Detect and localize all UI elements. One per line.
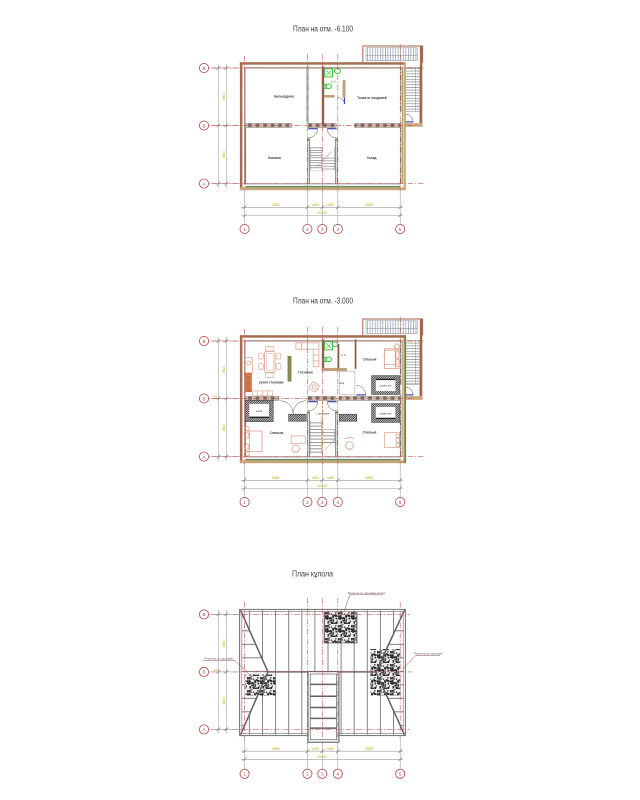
svg-text:10040: 10040 <box>317 484 327 488</box>
svg-text:3: 3 <box>321 500 324 505</box>
svg-text:1490: 1490 <box>311 476 319 480</box>
svg-text:Гостиная: Гостиная <box>298 371 313 375</box>
svg-text:Склад: Склад <box>367 156 377 160</box>
svg-text:5080: 5080 <box>272 747 280 751</box>
svg-text:3: 3 <box>321 772 324 777</box>
svg-text:150: 150 <box>214 668 219 672</box>
svg-text:1: 1 <box>243 772 246 777</box>
svg-text:1485: 1485 <box>326 476 334 480</box>
svg-text:шкф: шкф <box>339 382 344 385</box>
svg-text:План кұпола: План кұпола <box>292 570 334 579</box>
svg-text:2: 2 <box>306 772 309 777</box>
svg-text:5800: 5800 <box>222 639 226 647</box>
svg-text:4: 4 <box>337 227 340 232</box>
svg-text:1490: 1490 <box>311 747 319 751</box>
svg-text:5800: 5800 <box>222 151 226 159</box>
svg-text:5800: 5800 <box>222 697 226 705</box>
svg-text:1: 1 <box>243 227 246 232</box>
svg-text:Топка от кладовой: Топка от кладовой <box>357 96 386 100</box>
svg-text:5080: 5080 <box>272 203 280 207</box>
svg-text:Омывка: Омывка <box>268 156 281 160</box>
svg-text:1: 1 <box>243 500 246 505</box>
svg-text:Спальня: Спальня <box>363 357 377 361</box>
svg-text:4: 4 <box>337 500 340 505</box>
svg-text:Решетка су ташлама: Решетка су ташлама <box>414 652 442 656</box>
svg-text:Бильярдная: Бильярдная <box>274 94 294 98</box>
svg-text:План на отм. -6.100: План на отм. -6.100 <box>293 24 354 33</box>
svg-text:В: В <box>202 339 205 344</box>
svg-text:10040: 10040 <box>317 755 327 759</box>
svg-text:5800: 5800 <box>222 93 226 101</box>
svg-text:Спальня: Спальня <box>270 431 284 435</box>
svg-text:кухня столовая: кухня столовая <box>259 381 284 385</box>
svg-text:Спальня: Спальня <box>363 431 377 435</box>
svg-text:5: 5 <box>399 772 402 777</box>
svg-text:шкаф-купе: шкаф-купе <box>380 412 393 415</box>
svg-text:2: 2 <box>306 227 309 232</box>
svg-text:150: 150 <box>213 394 218 398</box>
svg-text:Решетка су ташлама тесиги: Решетка су ташлама тесиги <box>348 591 386 595</box>
svg-text:10040: 10040 <box>317 211 327 215</box>
svg-text:Решетка су ташлама: Решетка су ташлама <box>205 657 233 661</box>
svg-text:5: 5 <box>399 227 402 232</box>
svg-text:1485: 1485 <box>326 747 334 751</box>
svg-text:1485: 1485 <box>326 203 334 207</box>
svg-text:5800: 5800 <box>222 424 226 432</box>
svg-text:прихожая: прихожая <box>318 412 330 415</box>
svg-text:4: 4 <box>337 772 340 777</box>
svg-text:5080: 5080 <box>272 476 280 480</box>
svg-text:План на отм. -3.000: План на отм. -3.000 <box>293 297 354 306</box>
svg-text:2: 2 <box>306 500 309 505</box>
svg-text:С.У: С.У <box>331 79 336 83</box>
svg-text:5950: 5950 <box>366 203 374 207</box>
svg-text:5950: 5950 <box>366 747 374 751</box>
svg-text:5800: 5800 <box>222 366 226 374</box>
svg-text:Б: Б <box>202 396 205 401</box>
svg-text:Б: Б <box>202 123 205 128</box>
svg-text:5950: 5950 <box>366 476 374 480</box>
svg-text:3: 3 <box>321 227 324 232</box>
svg-text:Б: Б <box>202 670 205 675</box>
svg-text:В: В <box>202 66 205 71</box>
svg-text:В: В <box>202 612 205 617</box>
svg-text:5: 5 <box>399 500 402 505</box>
svg-text:1490: 1490 <box>311 203 319 207</box>
svg-text:шкаф-купе: шкаф-купе <box>380 384 393 387</box>
svg-text:С.У: С.У <box>341 353 346 357</box>
svg-text:шкаф: шкаф <box>256 410 262 413</box>
